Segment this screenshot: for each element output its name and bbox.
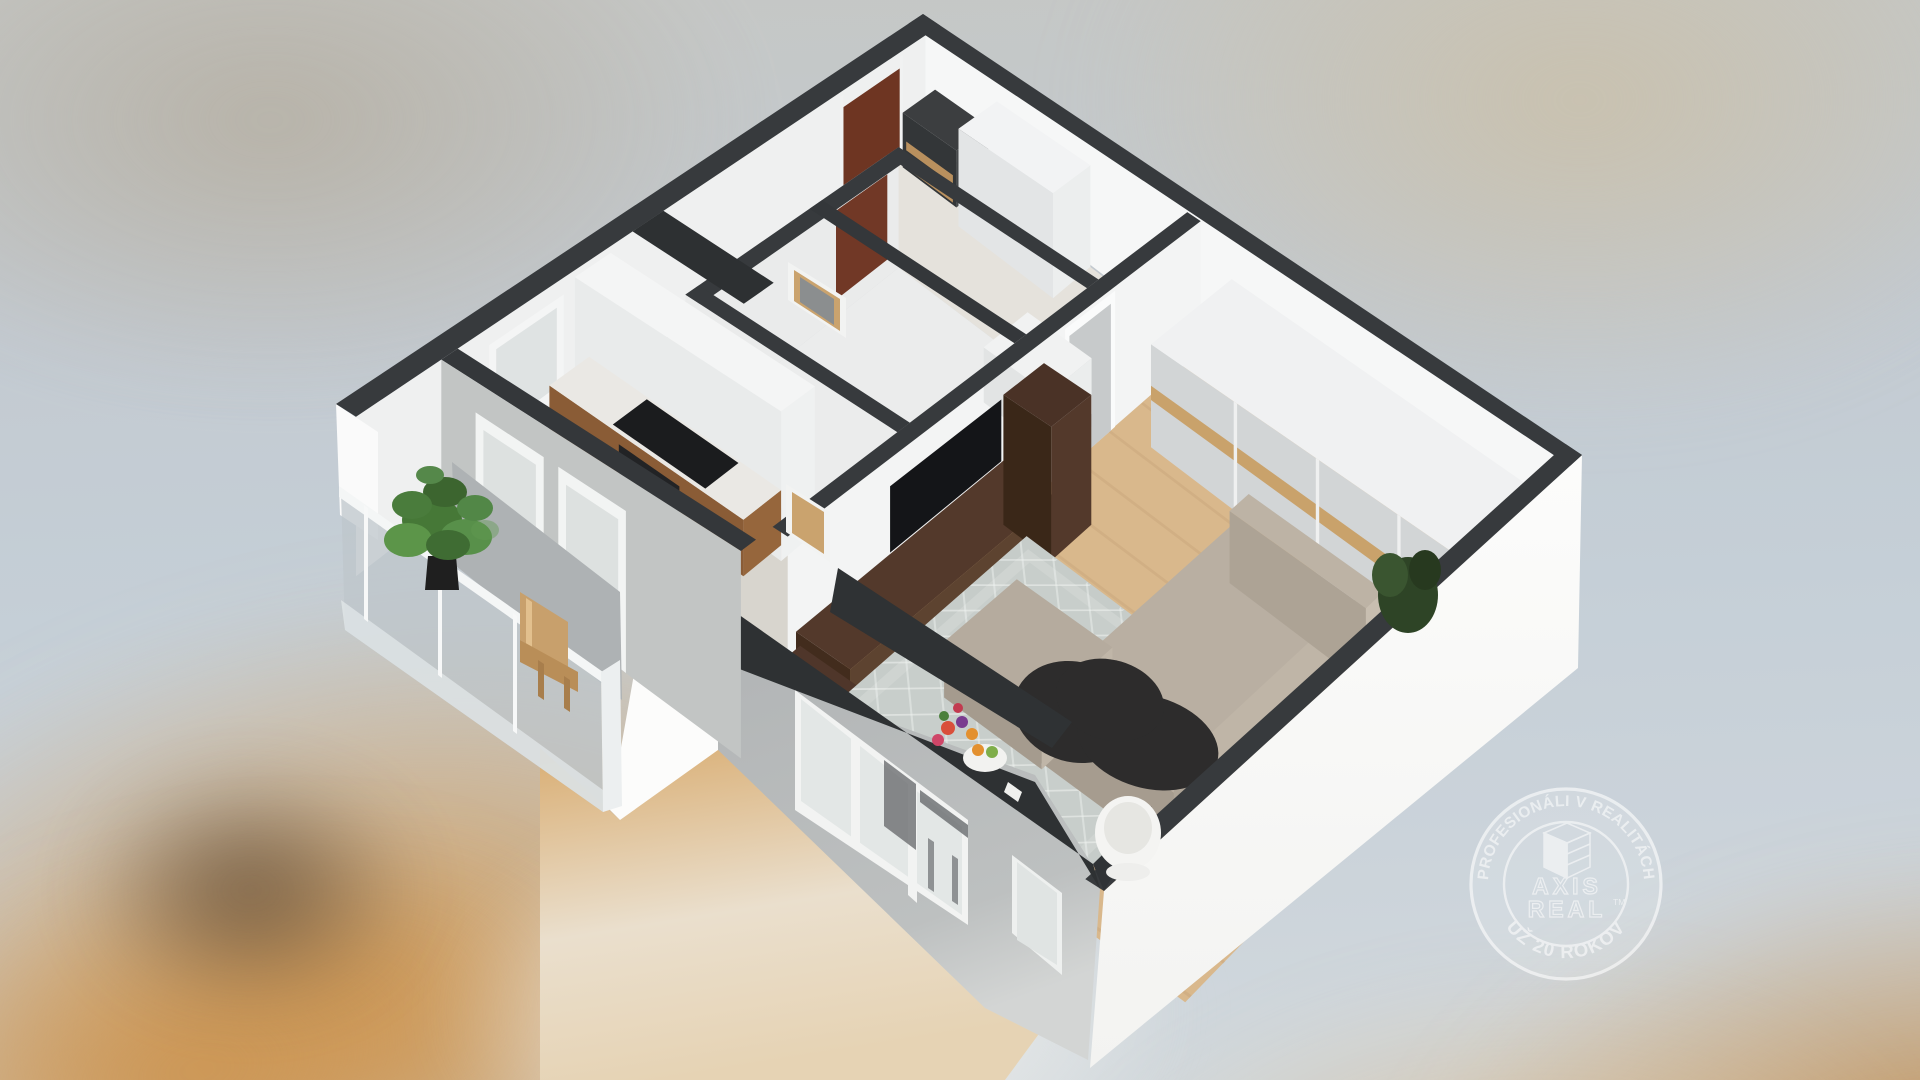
svg-text:REAL: REAL [1528,896,1607,922]
svg-text:TM: TM [1613,897,1625,907]
